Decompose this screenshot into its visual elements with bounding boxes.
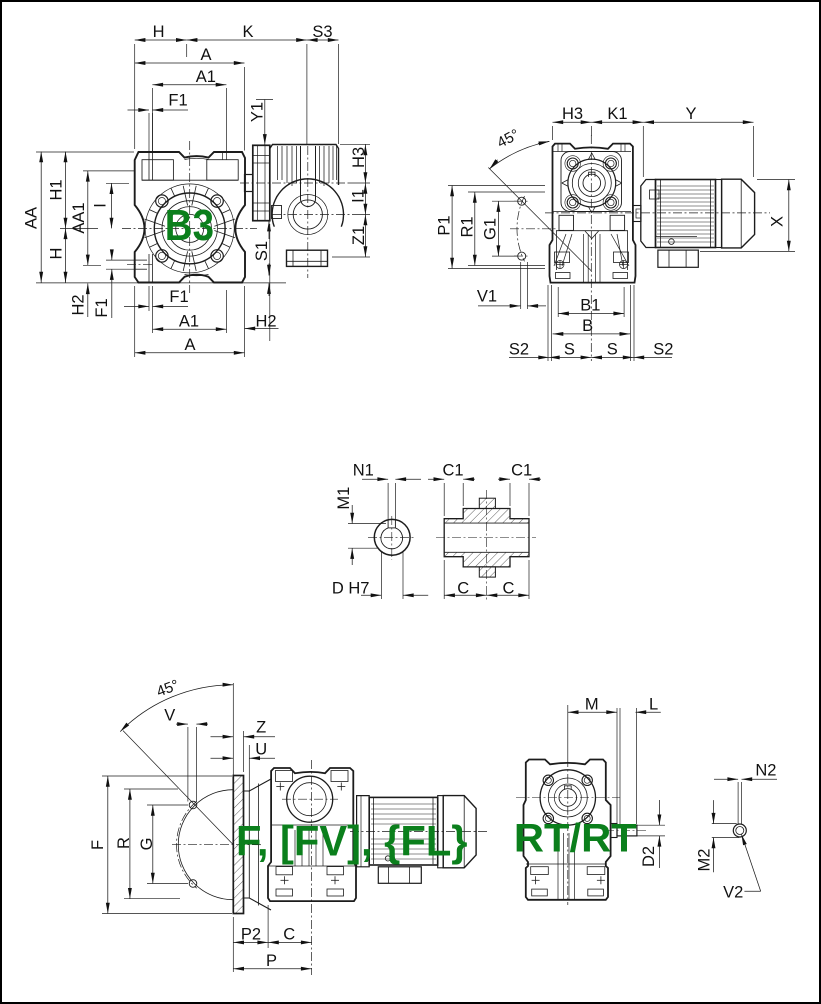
svg-text:N2: N2 — [755, 762, 776, 780]
svg-text:N1: N1 — [353, 461, 374, 479]
svg-text:A1: A1 — [196, 68, 216, 86]
svg-text:X: X — [769, 216, 787, 227]
svg-text:R1: R1 — [458, 216, 476, 237]
svg-text:C1: C1 — [442, 461, 463, 479]
svg-text:G: G — [138, 838, 156, 851]
svg-text:AA1: AA1 — [70, 202, 88, 233]
svg-text:C1: C1 — [511, 461, 532, 479]
svg-text:I: I — [91, 203, 109, 208]
svg-text:H2: H2 — [255, 312, 276, 330]
svg-text:K1: K1 — [607, 105, 627, 123]
svg-text:R: R — [115, 837, 133, 849]
svg-text:S: S — [607, 340, 618, 358]
svg-text:S2: S2 — [653, 340, 673, 358]
svg-text:B3: B3 — [165, 202, 214, 250]
svg-text:F1: F1 — [168, 91, 187, 109]
svg-text:P2: P2 — [241, 926, 261, 944]
svg-text:H1: H1 — [47, 179, 65, 200]
svg-text:F, [FV], {FL}: F, [FV], {FL} — [236, 819, 468, 866]
svg-text:Y: Y — [685, 105, 696, 123]
svg-text:M2: M2 — [695, 849, 713, 872]
svg-text:D H7: D H7 — [332, 579, 370, 597]
svg-text:C: C — [457, 579, 469, 597]
svg-text:Z1: Z1 — [350, 226, 368, 245]
svg-text:Z: Z — [256, 719, 266, 737]
svg-text:A: A — [200, 46, 211, 64]
svg-text:G1: G1 — [481, 218, 499, 240]
svg-text:V1: V1 — [477, 287, 497, 305]
svg-text:H: H — [153, 23, 165, 41]
svg-text:I1: I1 — [349, 189, 367, 203]
svg-text:M: M — [585, 695, 599, 713]
svg-text:RT/RT: RT/RT — [514, 817, 637, 861]
svg-text:P1: P1 — [435, 215, 453, 235]
svg-text:H: H — [47, 248, 65, 260]
svg-text:S3: S3 — [312, 23, 332, 41]
svg-text:Y1: Y1 — [248, 102, 266, 122]
svg-text:B: B — [582, 317, 593, 335]
svg-text:M1: M1 — [335, 487, 353, 510]
svg-text:S2: S2 — [509, 340, 529, 358]
svg-text:L: L — [649, 695, 658, 713]
svg-text:A1: A1 — [179, 312, 199, 330]
svg-text:V2: V2 — [723, 884, 743, 902]
svg-text:F1: F1 — [93, 298, 111, 317]
svg-text:C: C — [283, 926, 295, 944]
svg-text:F1: F1 — [169, 288, 188, 306]
svg-text:AA: AA — [22, 207, 40, 229]
svg-text:H3: H3 — [562, 105, 583, 123]
svg-text:H2: H2 — [69, 294, 87, 315]
svg-text:P: P — [266, 952, 277, 970]
svg-text:S1: S1 — [253, 241, 271, 261]
svg-text:F: F — [89, 840, 107, 850]
svg-text:B1: B1 — [580, 296, 600, 314]
svg-text:V: V — [164, 707, 175, 725]
svg-text:A: A — [184, 336, 195, 354]
svg-text:H3: H3 — [350, 147, 368, 168]
svg-text:D2: D2 — [640, 846, 658, 867]
svg-text:U: U — [255, 741, 267, 759]
svg-text:S: S — [564, 340, 575, 358]
svg-text:K: K — [242, 23, 253, 41]
svg-text:C: C — [503, 579, 515, 597]
